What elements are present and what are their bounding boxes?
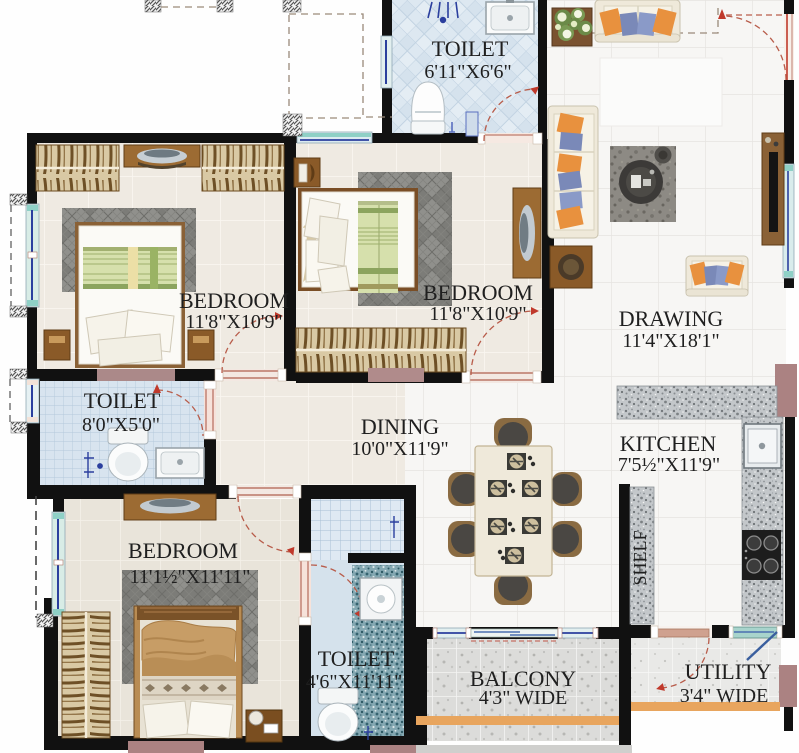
svg-text:11'8"X10'9": 11'8"X10'9" <box>429 303 526 325</box>
svg-text:8'0"X5'0": 8'0"X5'0" <box>82 414 160 436</box>
svg-text:KITCHEN: KITCHEN <box>620 431 717 456</box>
svg-text:7'5½"X11'9": 7'5½"X11'9" <box>618 454 720 476</box>
svg-text:3'4" WIDE: 3'4" WIDE <box>680 685 769 707</box>
svg-text:BEDROOM: BEDROOM <box>423 280 533 305</box>
svg-text:11'4"X18'1": 11'4"X18'1" <box>622 330 719 352</box>
svg-text:TOILET: TOILET <box>432 36 509 61</box>
svg-text:UTILITY: UTILITY <box>685 659 772 684</box>
svg-text:DINING: DINING <box>361 414 439 439</box>
svg-text:11'1½"X11'11": 11'1½"X11'11" <box>130 566 251 588</box>
svg-text:10'0"X11'9": 10'0"X11'9" <box>351 438 448 460</box>
svg-text:4'6"X11'11": 4'6"X11'11" <box>306 671 403 693</box>
svg-text:BEDROOM: BEDROOM <box>179 288 289 313</box>
svg-text:11'8"X10'9": 11'8"X10'9" <box>185 311 282 333</box>
svg-text:TOILET: TOILET <box>318 646 395 671</box>
svg-text:SHELF: SHELF <box>630 530 650 585</box>
svg-text:4'3" WIDE: 4'3" WIDE <box>479 687 568 709</box>
svg-text:TOILET: TOILET <box>84 388 161 413</box>
svg-text:6'11"X6'6": 6'11"X6'6" <box>424 61 511 83</box>
svg-text:DRAWING: DRAWING <box>619 306 724 331</box>
svg-text:BEDROOM: BEDROOM <box>128 538 238 563</box>
